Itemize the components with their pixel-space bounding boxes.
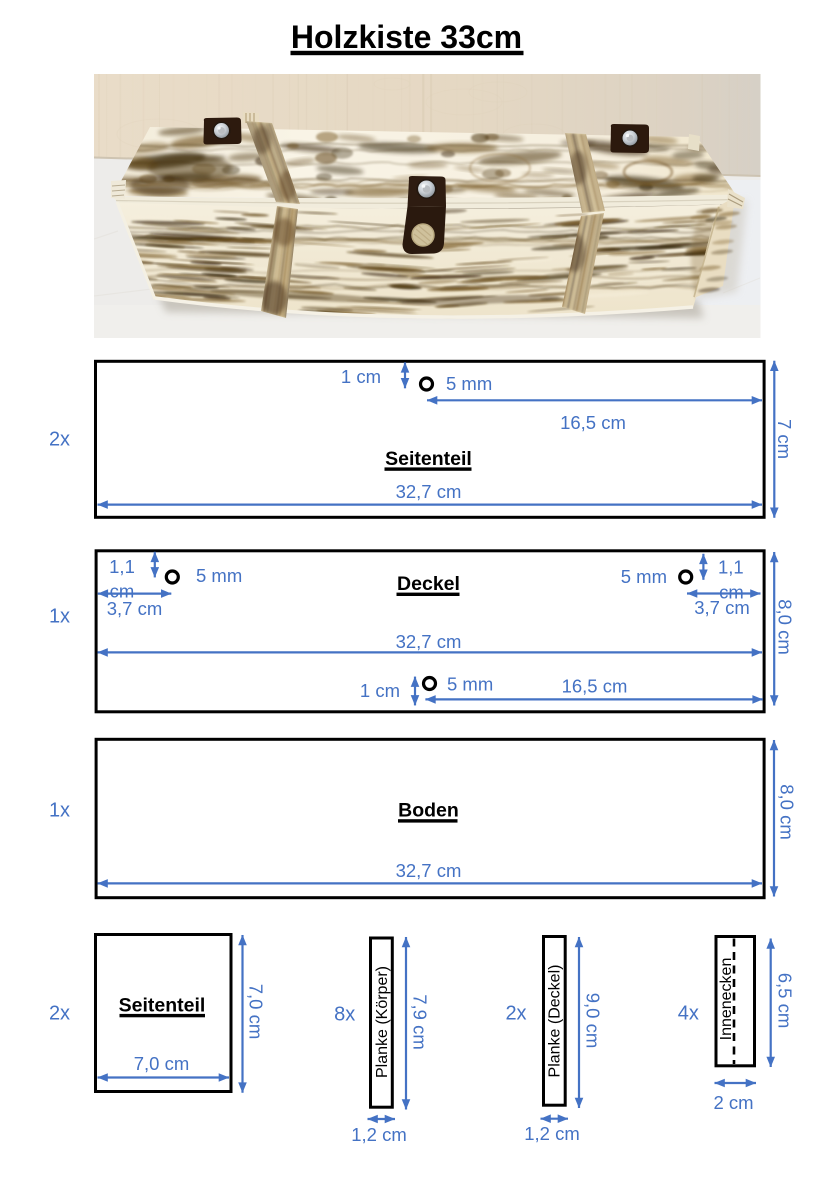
svg-text:Deckel: Deckel: [397, 573, 460, 595]
svg-text:16,5 cm: 16,5 cm: [562, 675, 628, 696]
svg-text:7,0 cm: 7,0 cm: [134, 1053, 190, 1074]
svg-text:32,7 cm: 32,7 cm: [396, 481, 462, 502]
svg-text:Boden: Boden: [398, 800, 459, 822]
svg-text:3,7 cm: 3,7 cm: [107, 598, 163, 619]
svg-text:1,2 cm: 1,2 cm: [524, 1123, 580, 1144]
svg-text:16,5 cm: 16,5 cm: [560, 412, 626, 433]
svg-text:5 mm: 5 mm: [446, 373, 492, 394]
svg-text:4x: 4x: [678, 1003, 699, 1025]
svg-text:3,7 cm: 3,7 cm: [694, 597, 750, 618]
svg-text:1 cm: 1 cm: [360, 680, 400, 701]
svg-text:5 mm: 5 mm: [447, 674, 493, 695]
svg-text:Planke (Körper): Planke (Körper): [374, 966, 391, 1078]
svg-text:8,0 cm: 8,0 cm: [775, 599, 796, 655]
svg-text:1,2 cm: 1,2 cm: [351, 1124, 407, 1145]
svg-text:2x: 2x: [505, 1003, 526, 1025]
svg-text:2 cm: 2 cm: [713, 1092, 753, 1113]
svg-text:Planke (Deckel): Planke (Deckel): [547, 965, 564, 1078]
svg-text:1,1: 1,1: [109, 556, 135, 577]
svg-text:1x: 1x: [49, 800, 70, 822]
svg-text:5 mm: 5 mm: [621, 566, 667, 587]
svg-text:1,1: 1,1: [718, 557, 744, 578]
svg-text:2x: 2x: [49, 1003, 70, 1025]
svg-text:2x: 2x: [49, 429, 70, 451]
svg-text:7 cm: 7 cm: [774, 419, 795, 459]
svg-text:1 cm: 1 cm: [341, 366, 381, 387]
svg-text:5 mm: 5 mm: [196, 565, 242, 586]
svg-text:Innenecken: Innenecken: [718, 958, 735, 1041]
svg-text:32,7 cm: 32,7 cm: [396, 631, 462, 652]
svg-text:Seitenteil: Seitenteil: [119, 995, 206, 1017]
svg-text:6,5 cm: 6,5 cm: [775, 973, 796, 1029]
svg-text:1x: 1x: [49, 606, 70, 628]
svg-text:8x: 8x: [334, 1004, 355, 1026]
svg-text:7,9 cm: 7,9 cm: [409, 994, 430, 1050]
svg-text:32,7 cm: 32,7 cm: [396, 860, 462, 881]
svg-text:Seitenteil: Seitenteil: [385, 448, 472, 470]
svg-text:8,0 cm: 8,0 cm: [776, 784, 797, 840]
svg-text:9,0 cm: 9,0 cm: [583, 993, 604, 1049]
svg-text:Holzkiste 33cm: Holzkiste 33cm: [291, 19, 522, 55]
svg-text:7,0 cm: 7,0 cm: [245, 984, 266, 1040]
